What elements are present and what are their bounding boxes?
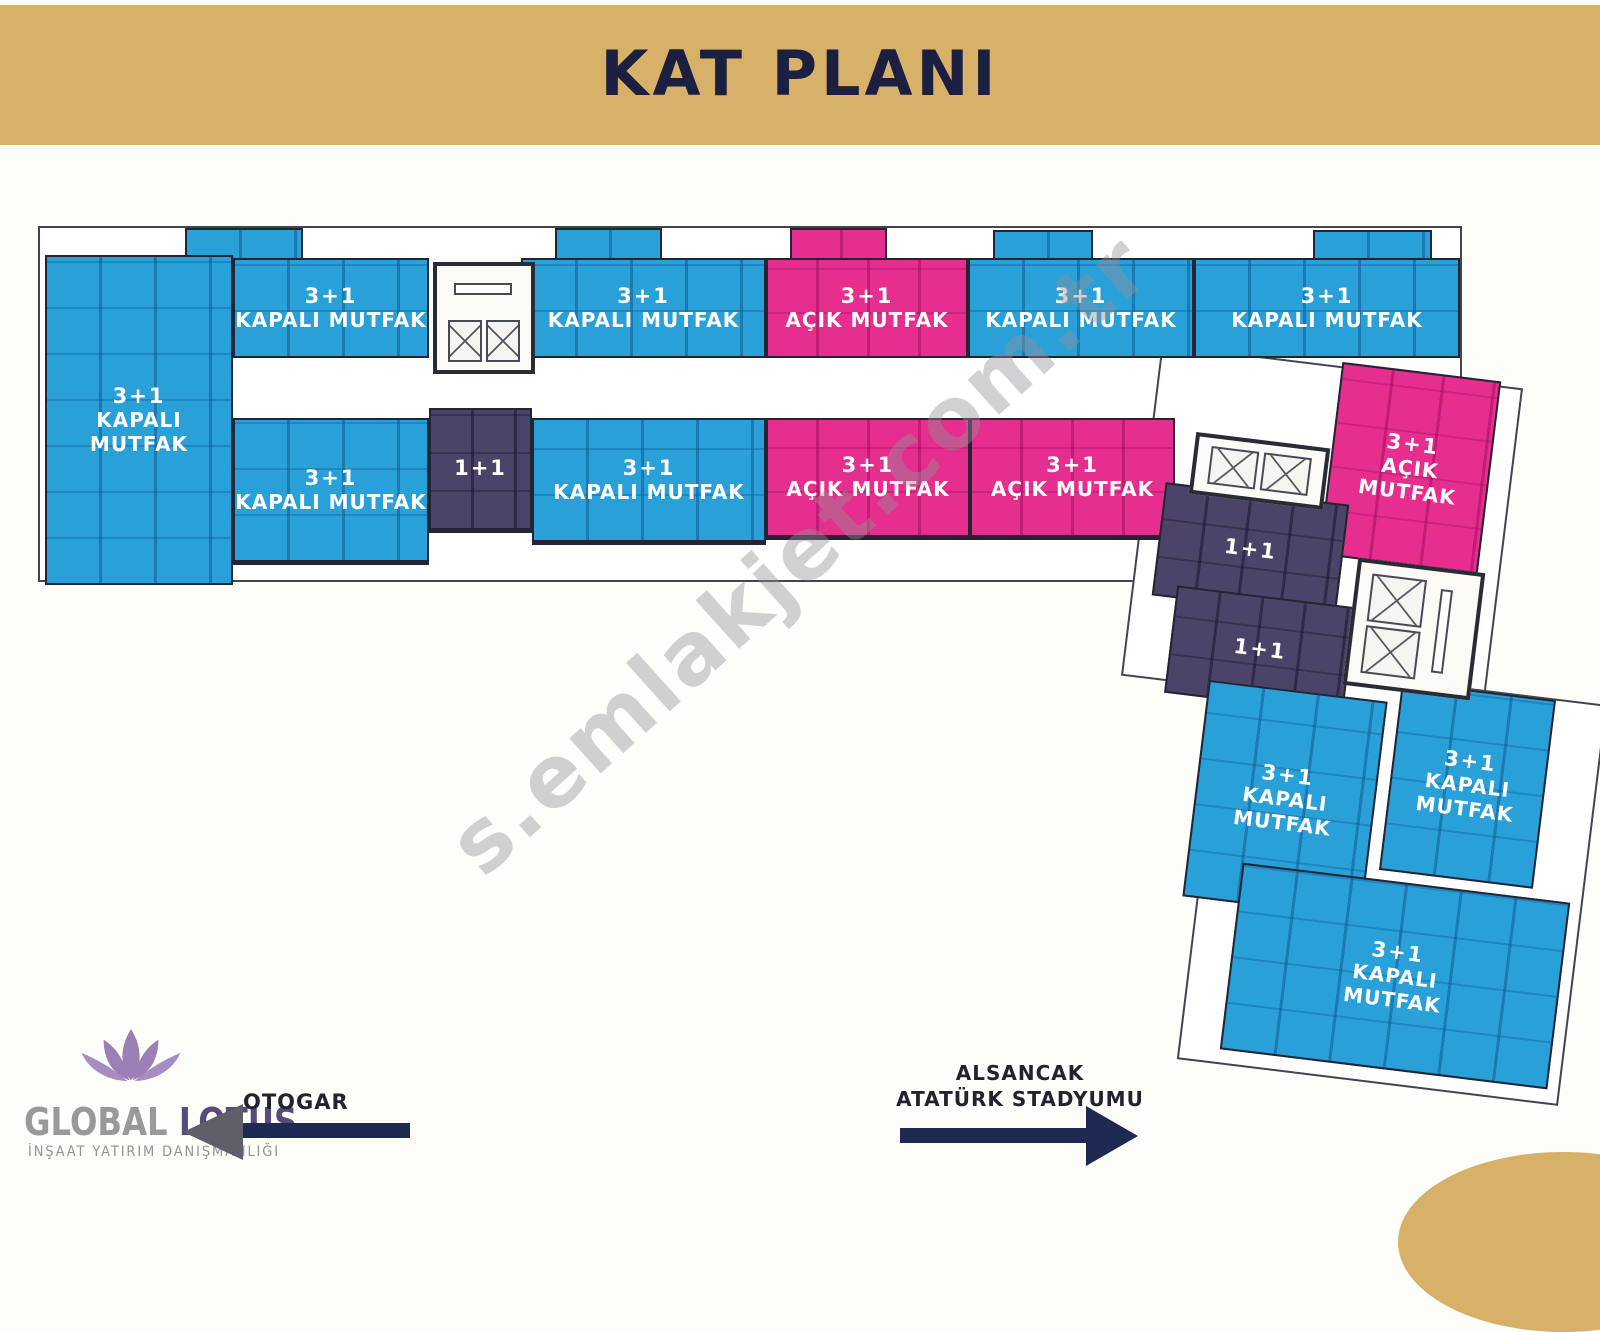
stair-icon <box>454 283 512 295</box>
header-band: KAT PLANI <box>0 5 1600 145</box>
unit-type-label: 1+1 <box>454 456 507 481</box>
unit-kitchen-label: KAPALI MUTFAK <box>80 409 198 456</box>
unit-3plus1-kapali-mutfak: 3+1 KAPALI MUTFAK <box>532 418 766 545</box>
elevator-shaft-x-icon <box>1360 626 1421 680</box>
unit-3plus1-kapali-mutfak: 3+1 KAPALI MUTFAK <box>968 258 1194 358</box>
unit-type-label: 3+1 <box>841 284 894 309</box>
elevator-shaft-x-icon <box>1367 573 1428 627</box>
direction-label-line1: ALSANCAK <box>870 1060 1170 1086</box>
elevator-shaft-x-icon <box>1260 452 1313 496</box>
unit-3plus1-kapali-mutfak: 3+1 KAPALI MUTFAK <box>233 258 429 358</box>
unit-type-label: 1+1 <box>1223 534 1279 565</box>
unit-type-label: 3+1 <box>617 284 670 309</box>
unit-1plus1: 1+1 <box>429 408 532 533</box>
unit-3plus1-acik-mutfak: 3+1 AÇIK MUTFAK <box>766 258 968 358</box>
unit-3plus1-kapali-mutfak: 3+1 KAPALI MUTFAK <box>521 258 766 358</box>
unit-kitchen-label: KAPALI MUTFAK <box>1231 309 1423 333</box>
unit-kitchen-label: AÇIK MUTFAK <box>786 478 949 502</box>
unit-3plus1-kapali-mutfak: 3+1 KAPALI MUTFAK <box>1220 863 1570 1090</box>
unit-kitchen-label: KAPALI MUTFAK <box>235 309 427 333</box>
unit-kitchen-label: KAPALI MUTFAK <box>235 491 427 515</box>
unit-kitchen-label: KAPALI MUTFAK <box>553 481 745 505</box>
unit-3plus1-kapali-mutfak: 3+1 KAPALI MUTFAK <box>1379 681 1556 888</box>
lotus-flower-icon <box>78 1020 184 1098</box>
unit-kitchen-label: KAPALI MUTFAK <box>1222 781 1345 842</box>
page-title: KAT PLANI <box>0 5 1600 143</box>
unit-kitchen-label: KAPALI MUTFAK <box>1332 958 1455 1019</box>
direction-label-alsancak: ALSANCAK ATATÜRK STADYUMU <box>870 1060 1170 1112</box>
arrow-left-bar <box>240 1123 410 1138</box>
unit-3plus1-acik-mutfak: 3+1 AÇIK MUTFAK <box>1319 362 1501 574</box>
unit-type-label: 3+1 <box>305 466 358 491</box>
unit-kitchen-label: AÇIK MUTFAK <box>1347 450 1470 511</box>
gold-corner-decoration <box>1398 1152 1600 1332</box>
unit-3plus1-acik-mutfak: 3+1 AÇIK MUTFAK <box>766 418 970 540</box>
unit-3plus1-kapali-mutfak: 3+1 KAPALI MUTFAK <box>233 418 429 565</box>
unit-type-label: 3+1 <box>623 456 676 481</box>
unit-kitchen-label: AÇIK MUTFAK <box>991 478 1154 502</box>
stair-icon <box>1430 589 1452 674</box>
unit-type-label: 3+1 <box>113 384 166 409</box>
unit-type-label: 3+1 <box>1046 453 1099 478</box>
direction-label-otogar: OTOGAR <box>243 1090 349 1114</box>
floor-plan-page: KAT PLANI 3+1 KAPALI MUTFAK 3+1 KAPALI M… <box>0 0 1600 1180</box>
elevator-shaft-x-icon <box>486 320 520 362</box>
elevator-shaft-x-icon <box>448 320 482 362</box>
unit-type-label: 1+1 <box>1232 634 1288 665</box>
unit-kitchen-label: KAPALI MUTFAK <box>1405 767 1528 828</box>
unit-3plus1-kapali-mutfak: 3+1 KAPALI MUTFAK <box>45 255 233 585</box>
brand-word-global: GLOBAL <box>24 1100 168 1144</box>
unit-kitchen-label: KAPALI MUTFAK <box>985 309 1177 333</box>
unit-type-label: 3+1 <box>305 284 358 309</box>
unit-3plus1-acik-mutfak: 3+1 AÇIK MUTFAK <box>970 418 1175 540</box>
unit-3plus1-kapali-mutfak: 3+1 KAPALI MUTFAK <box>1194 258 1460 358</box>
arrow-right-icon <box>1086 1106 1138 1166</box>
unit-kitchen-label: AÇIK MUTFAK <box>785 309 948 333</box>
unit-type-label: 3+1 <box>1301 284 1354 309</box>
arrow-left-icon <box>183 1104 243 1160</box>
unit-type-label: 3+1 <box>842 453 895 478</box>
elevator-core <box>433 262 535 374</box>
unit-kitchen-label: KAPALI MUTFAK <box>548 309 740 333</box>
unit-type-label: 3+1 <box>1055 284 1108 309</box>
elevator-shaft-x-icon <box>1207 445 1260 489</box>
arrow-right-bar <box>900 1128 1086 1143</box>
elevator-core <box>1343 558 1486 701</box>
